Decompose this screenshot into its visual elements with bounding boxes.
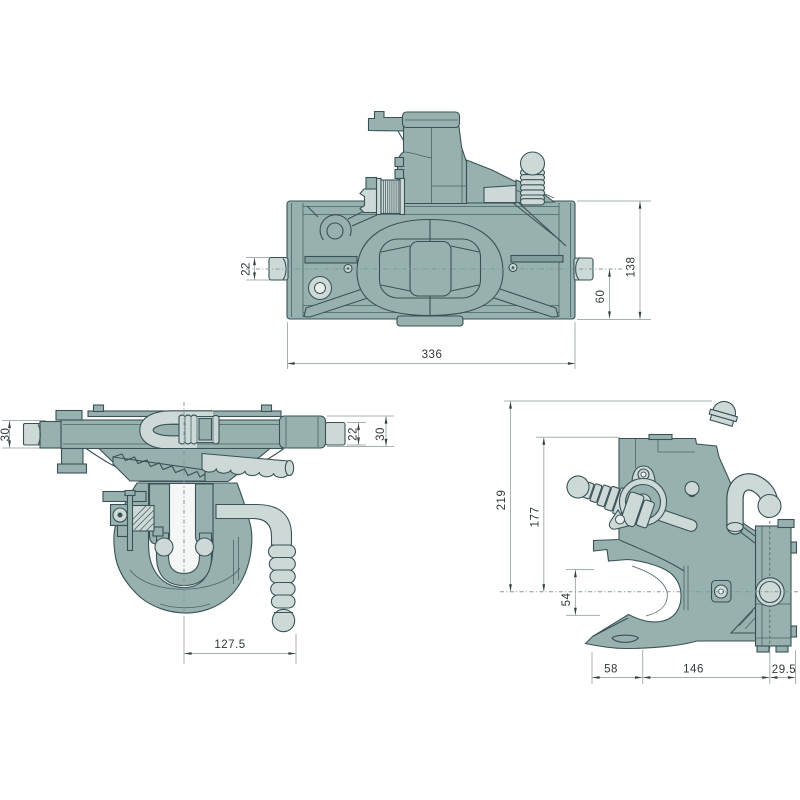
svg-text:60: 60	[595, 290, 607, 304]
svg-text:177: 177	[530, 507, 542, 528]
svg-text:146: 146	[683, 664, 704, 676]
svg-text:22: 22	[348, 427, 360, 441]
svg-text:336: 336	[422, 349, 443, 361]
svg-text:58: 58	[604, 664, 618, 676]
svg-text:29.5: 29.5	[772, 664, 796, 676]
svg-text:219: 219	[496, 490, 508, 511]
svg-text:138: 138	[626, 257, 638, 278]
svg-text:30: 30	[0, 428, 12, 442]
svg-text:127.5: 127.5	[214, 639, 245, 651]
svg-text:54: 54	[561, 593, 573, 607]
svg-text:30: 30	[375, 427, 387, 441]
